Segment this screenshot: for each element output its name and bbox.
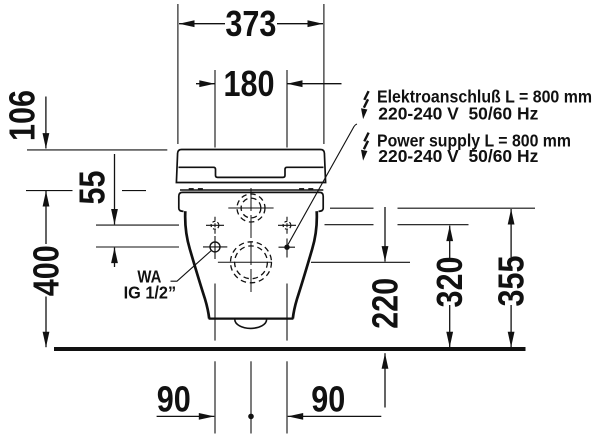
svg-text:180: 180 (223, 65, 274, 105)
svg-text:IG 1/2”: IG 1/2” (124, 282, 177, 302)
svg-text:220: 220 (366, 278, 406, 329)
svg-text:355: 355 (492, 255, 532, 306)
svg-text:90: 90 (157, 380, 191, 420)
svg-text:55: 55 (73, 170, 113, 204)
svg-text:400: 400 (27, 245, 67, 296)
svg-text:90: 90 (311, 380, 345, 420)
svg-text:220-240 V 50/60 Hz: 220-240 V 50/60 Hz (378, 146, 538, 166)
svg-text:373: 373 (225, 5, 276, 45)
svg-text:106: 106 (3, 90, 43, 141)
svg-text:320: 320 (431, 256, 471, 307)
svg-text:220-240 V 50/60 Hz: 220-240 V 50/60 Hz (378, 103, 538, 123)
